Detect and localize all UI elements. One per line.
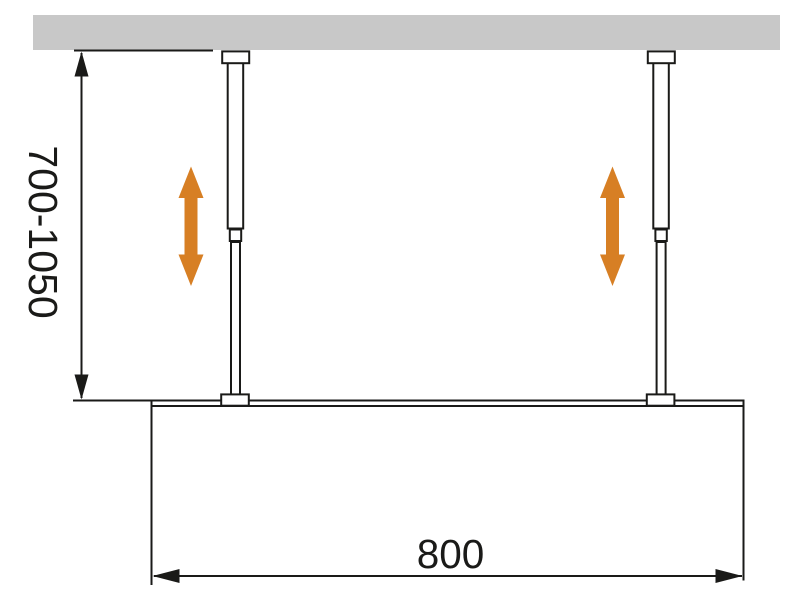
svg-text:800: 800: [417, 531, 485, 577]
svg-text:700-1050: 700-1050: [20, 145, 66, 318]
